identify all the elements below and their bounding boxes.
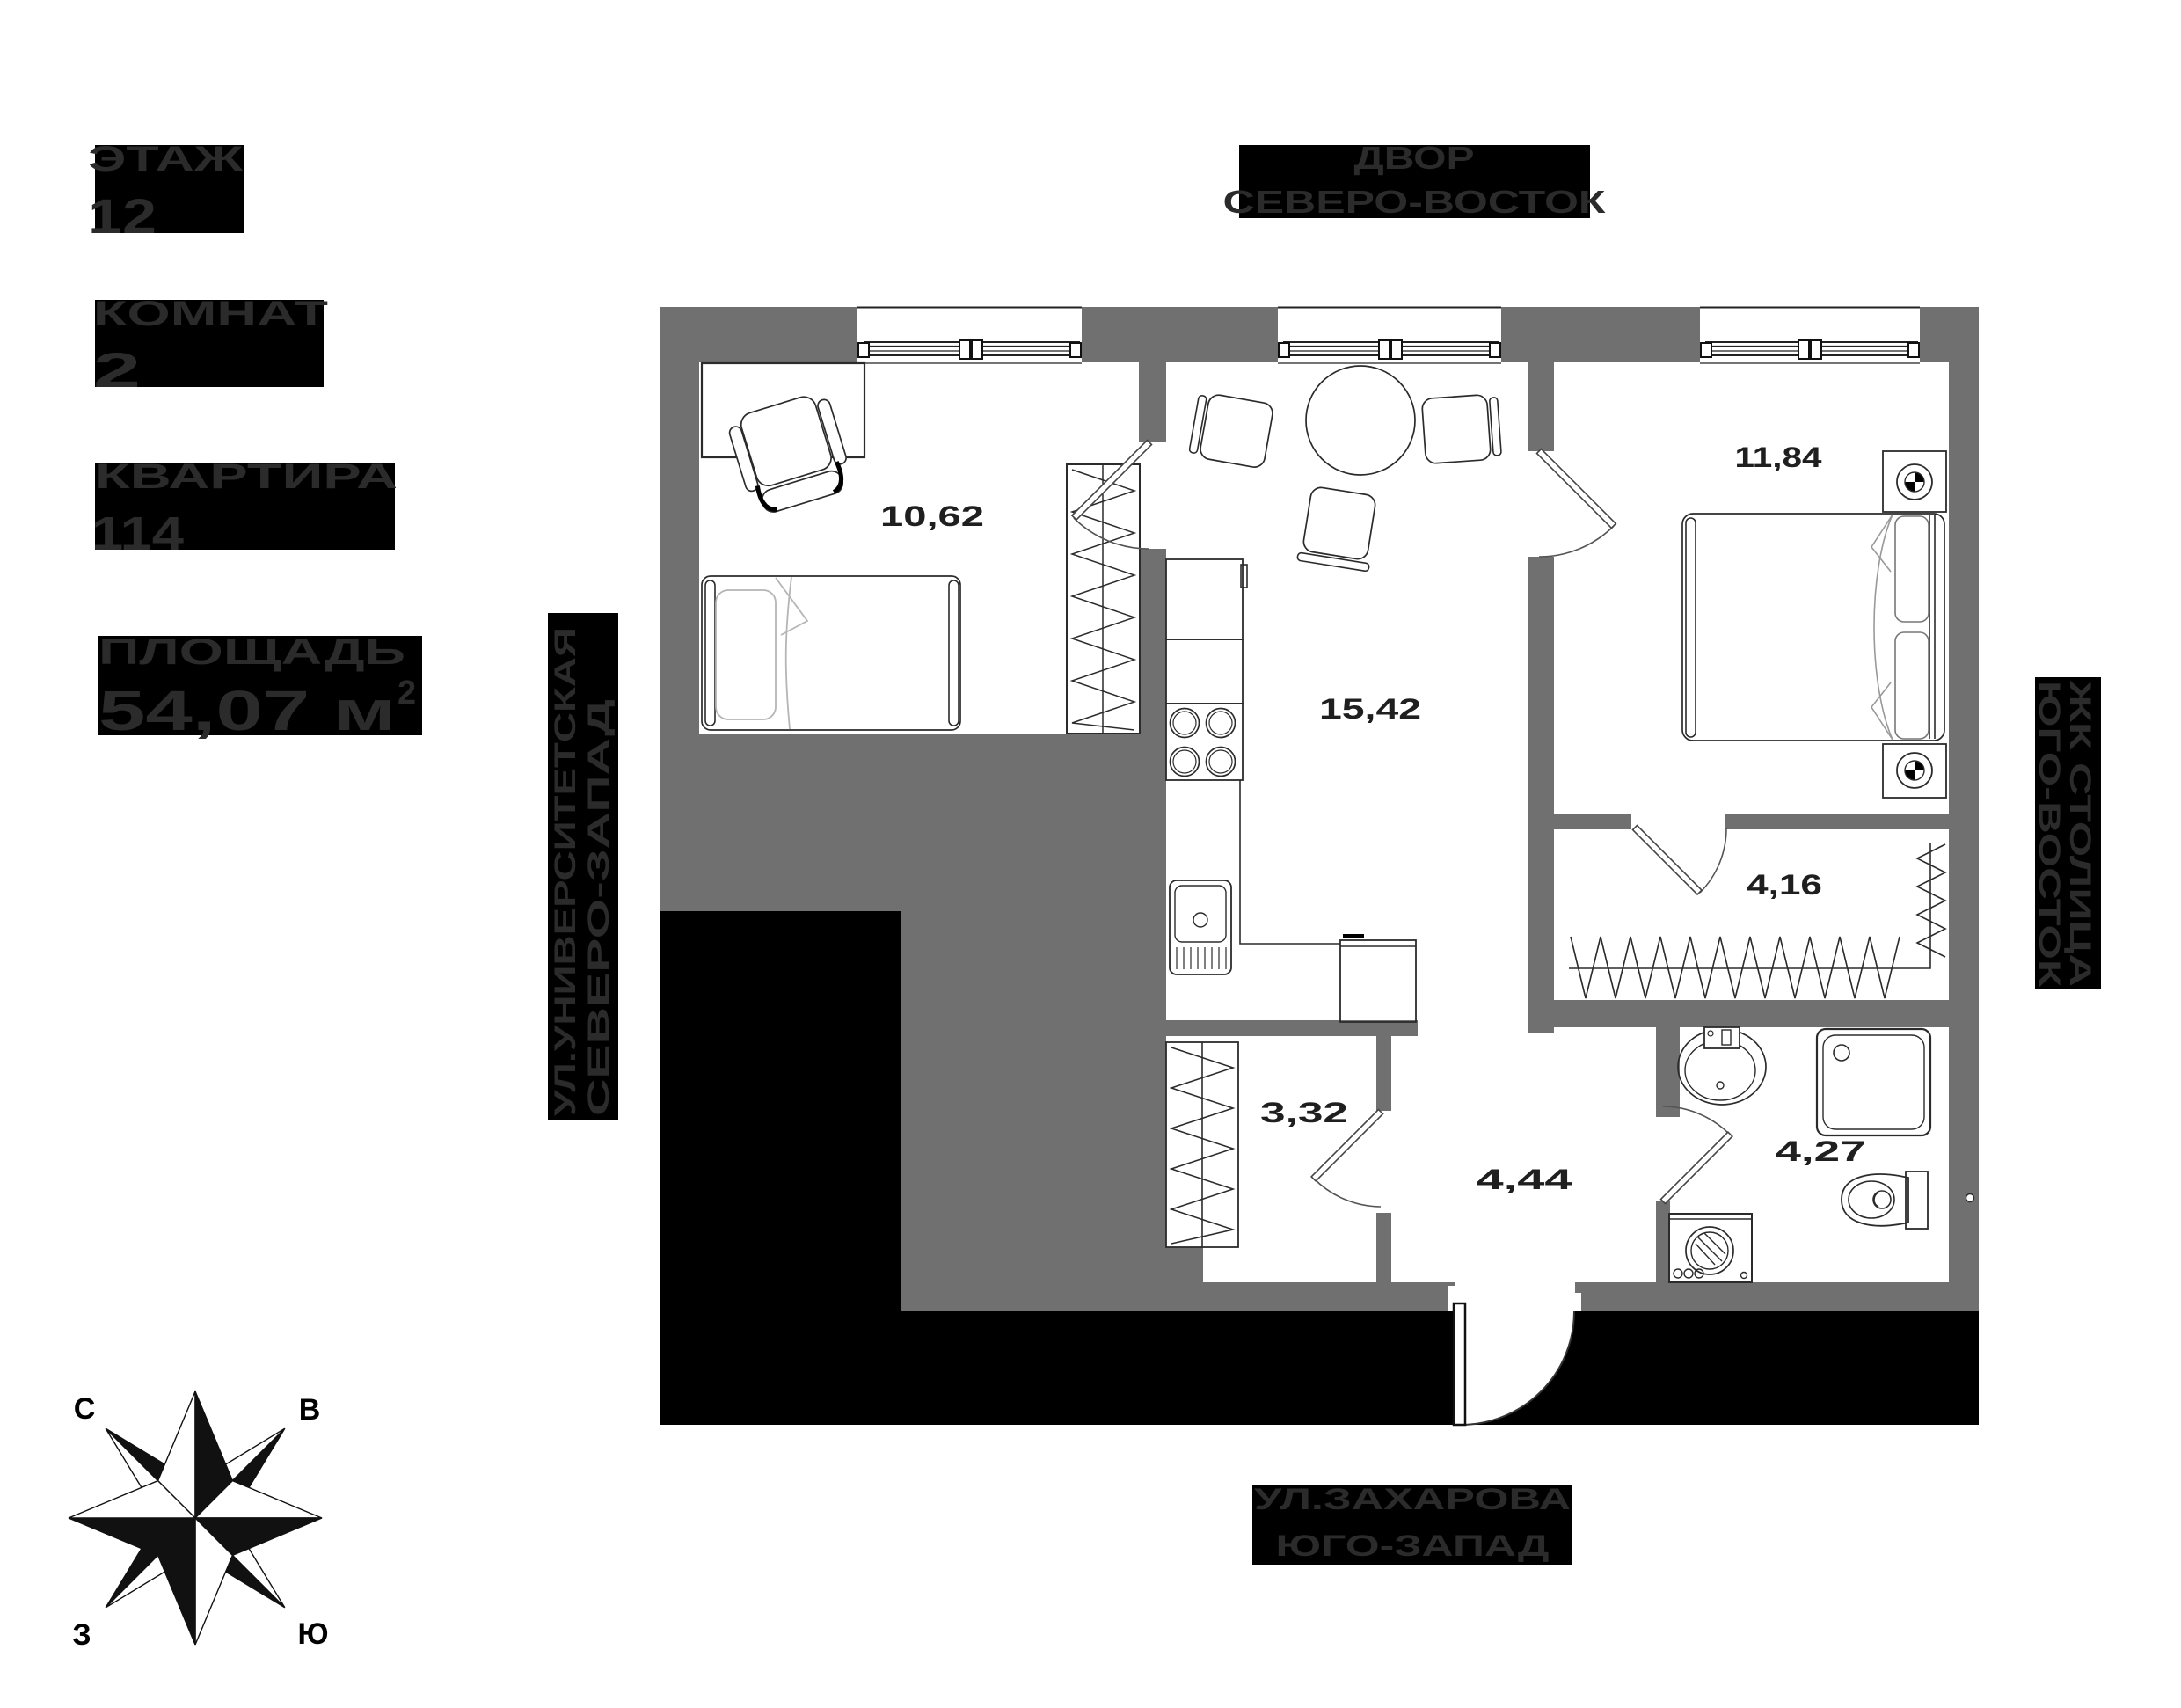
svg-text:СЕВЕРО-ВОСТОК: СЕВЕРО-ВОСТОК <box>1223 184 1607 220</box>
svg-text:С: С <box>74 1392 96 1426</box>
svg-text:Ю: Ю <box>297 1617 328 1651</box>
svg-text:4,27: 4,27 <box>1776 1135 1866 1167</box>
svg-text:ДВОР: ДВОР <box>1354 140 1475 176</box>
svg-text:114: 114 <box>91 507 184 560</box>
svg-text:З: З <box>72 1618 91 1652</box>
svg-text:КОМНАТ: КОМНАТ <box>93 295 328 333</box>
svg-text:2: 2 <box>93 342 141 398</box>
svg-text:4,44: 4,44 <box>1477 1164 1572 1195</box>
svg-text:12: 12 <box>88 188 157 244</box>
svg-text:10,62: 10,62 <box>880 500 984 532</box>
svg-text:УЛ.ЗАХАРОВА: УЛ.ЗАХАРОВА <box>1254 1483 1571 1516</box>
svg-text:ПЛОЩАДЬ: ПЛОЩАДЬ <box>98 631 405 672</box>
svg-text:11,84: 11,84 <box>1735 442 1822 473</box>
svg-text:2: 2 <box>398 675 416 712</box>
svg-text:ЮГО-ЗАПАД: ЮГО-ЗАПАД <box>1276 1529 1550 1563</box>
svg-text:ЮГО-ВОСТОК: ЮГО-ВОСТОК <box>2032 681 2066 987</box>
svg-text:3,32: 3,32 <box>1260 1097 1348 1128</box>
svg-text:КВАРТИРА: КВАРТИРА <box>95 457 398 496</box>
svg-text:ЖК СТОЛИЦА: ЖК СТОЛИЦА <box>2063 679 2097 987</box>
svg-text:15,42: 15,42 <box>1319 693 1421 725</box>
svg-text:ЭТАЖ: ЭТАЖ <box>88 140 244 179</box>
svg-text:УЛ.УНИВЕРСИТЕТСКАЯ: УЛ.УНИВЕРСИТЕТСКАЯ <box>549 627 582 1116</box>
svg-text:4,16: 4,16 <box>1747 869 1822 901</box>
svg-text:54,07 м: 54,07 м <box>98 679 396 742</box>
svg-text:В: В <box>299 1393 321 1427</box>
svg-text:СЕВЕРО-ЗАПАД: СЕВЕРО-ЗАПАД <box>582 699 616 1116</box>
